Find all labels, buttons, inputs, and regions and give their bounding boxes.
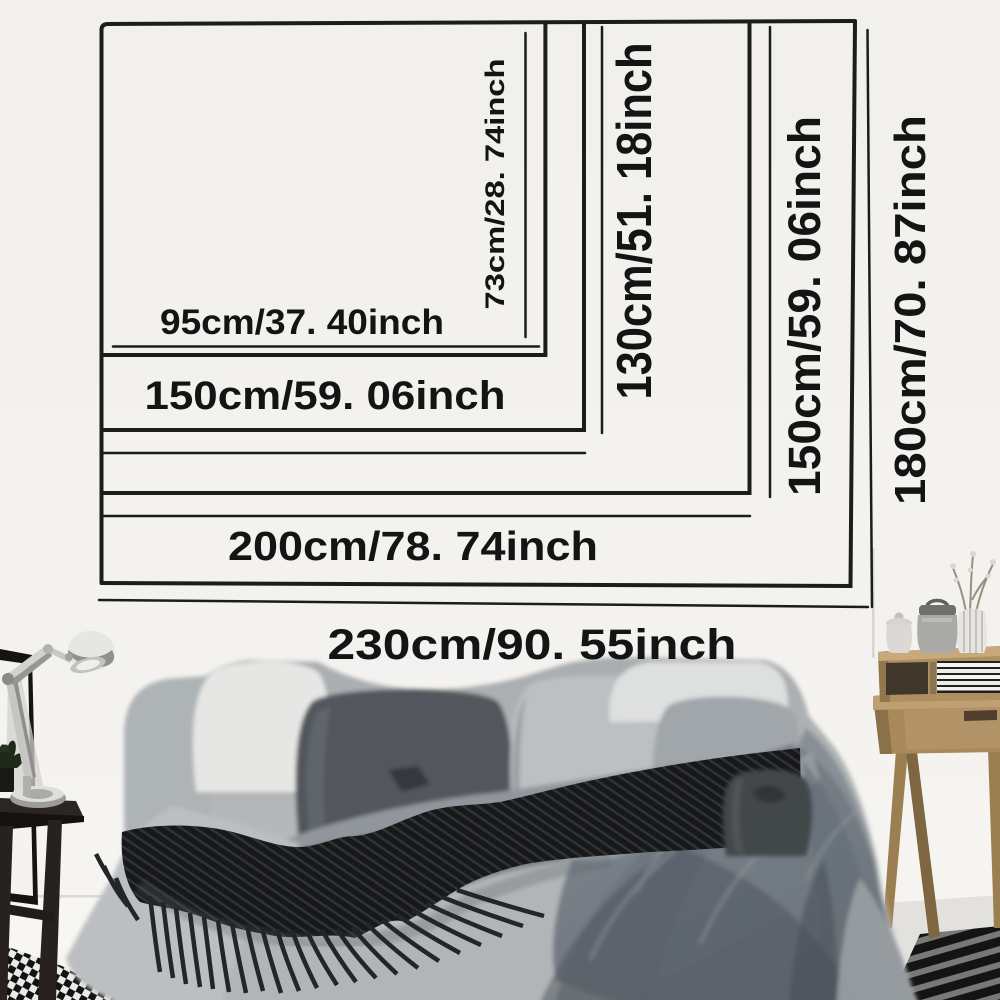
svg-text:73cm/28. 74inch: 73cm/28. 74inch <box>480 59 510 310</box>
svg-text:150cm/59. 06inch: 150cm/59. 06inch <box>145 374 506 418</box>
svg-text:95cm/37. 40inch: 95cm/37. 40inch <box>160 303 444 342</box>
svg-text:150cm/59. 06inch: 150cm/59. 06inch <box>779 116 830 496</box>
svg-text:230cm/90. 55inch: 230cm/90. 55inch <box>328 621 737 669</box>
svg-text:200cm/78. 74inch: 200cm/78. 74inch <box>228 523 598 569</box>
svg-text:130cm/51. 18inch: 130cm/51. 18inch <box>608 43 662 400</box>
svg-text:180cm/70. 87inch: 180cm/70. 87inch <box>886 115 935 505</box>
